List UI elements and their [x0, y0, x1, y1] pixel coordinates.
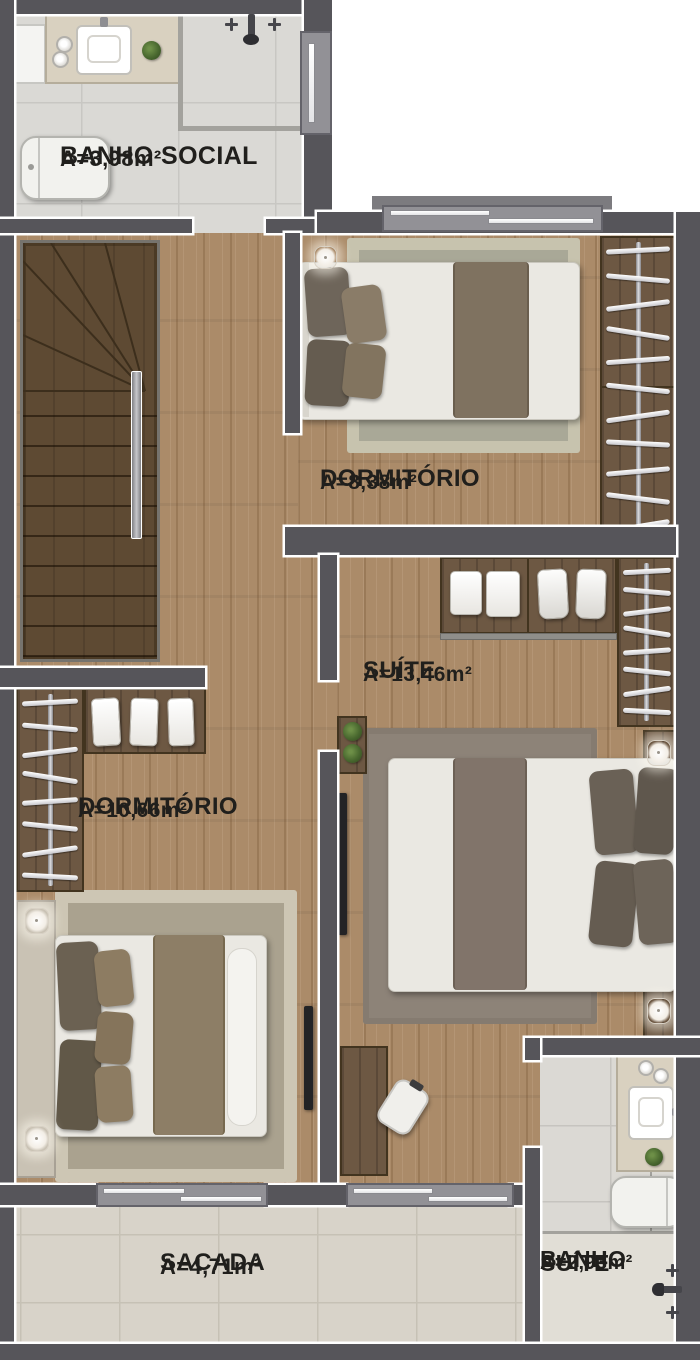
sacada-door-suite [346, 1183, 514, 1207]
suite-tv-icon [338, 793, 347, 935]
pillow [588, 860, 641, 948]
folded-towels-icon [486, 571, 520, 617]
wall-dorm1-left [285, 233, 300, 433]
sacada-door-pane [180, 1196, 262, 1202]
pillow [93, 948, 135, 1007]
pillow [341, 342, 386, 400]
shower-divider-v [178, 14, 183, 131]
wall-suite-left-upper [320, 555, 337, 680]
shower-valve-icon [666, 1264, 679, 1277]
closet-rod [644, 563, 649, 721]
dorm1-closet [600, 236, 676, 542]
wall-lamp-icon [25, 908, 49, 934]
dorm1-window-pane [488, 218, 594, 224]
room-area: A=8,38m² [320, 471, 417, 495]
toilet-tank-line [38, 138, 40, 198]
dorm2-bolster [227, 948, 257, 1126]
dorm1-window-pane [390, 210, 490, 216]
suite-wardrobe [440, 557, 617, 634]
sacada-floor [14, 1202, 525, 1344]
towel-roll-icon [638, 1060, 654, 1076]
bath-window-pane [308, 43, 315, 123]
sacada-door-dorm2 [96, 1183, 268, 1207]
bath-window [300, 31, 332, 135]
room-area: A=2,93m² [540, 1252, 633, 1274]
wall-bottom [0, 1344, 700, 1360]
room-area: A=3,98m² [60, 147, 162, 172]
suite-bed-throw [453, 758, 527, 990]
plant-icon [142, 41, 161, 60]
hanging-garment-icon [537, 568, 570, 620]
shower-head-icon [243, 34, 259, 45]
banho-suite-shower-divider [540, 1231, 684, 1234]
bath-sink-icon [76, 25, 132, 75]
sacada-door-pane [353, 1188, 433, 1194]
dorm1-bed-throw [453, 262, 529, 418]
wall-banho-suite-top [525, 1038, 700, 1055]
toilet-tank-line [666, 1178, 668, 1226]
plant-icon [645, 1148, 663, 1166]
sacada-door-pane [428, 1196, 508, 1202]
room-area: A=10,66m² [78, 799, 187, 823]
wall-top [0, 0, 332, 14]
banho-suite-sink-icon [628, 1086, 674, 1140]
wall-dorm2-top [0, 668, 205, 687]
shower-valve-icon [268, 18, 281, 31]
folded-clothes-icon [129, 698, 159, 747]
folded-clothes-icon [167, 698, 195, 747]
wall-lamp-icon [25, 1126, 49, 1152]
folded-towels-icon [450, 571, 482, 615]
staircase [20, 240, 160, 662]
shower-valve-icon [225, 18, 238, 31]
suite-closet [617, 557, 676, 727]
dorm2-bed-throw [153, 935, 225, 1135]
hanging-garment-icon [575, 568, 607, 619]
toilet-flush-icon [28, 164, 34, 170]
pillow [94, 1065, 134, 1123]
pillow [340, 283, 387, 344]
plant-icon [343, 722, 362, 741]
floor-plan: BANHO SOCIAL A=3,98m² DORMITÓRIO A=8,38m… [0, 0, 700, 1364]
plant-icon [343, 744, 362, 763]
wall-suite-left-lower [320, 752, 337, 1190]
folded-clothes-icon [91, 697, 121, 746]
towel-roll-icon [653, 1068, 669, 1084]
closet-rod [48, 694, 53, 886]
shower-divider-h [178, 126, 306, 131]
wall-suite-top [285, 527, 676, 555]
wall-right [676, 212, 700, 1344]
dorm2-closet-shelf [84, 688, 206, 754]
shower-head-icon [652, 1283, 664, 1296]
bath-faucet-icon [100, 17, 108, 27]
stair-railing [131, 371, 142, 539]
shower-valve-icon [666, 1306, 679, 1319]
wall-lamp-icon [314, 246, 337, 269]
wall-balcony-a [0, 1185, 96, 1205]
lamp-icon [647, 740, 671, 766]
room-area: A=4,71m² [160, 1255, 262, 1280]
pillow [633, 767, 679, 856]
lamp-icon [647, 998, 671, 1024]
pillow [94, 1011, 134, 1066]
dorm2-tv-icon [304, 1006, 313, 1110]
dorm2-closet-hanging [16, 688, 84, 892]
towel-roll-icon [52, 51, 69, 68]
wall-balcony-b [266, 1185, 346, 1205]
banho-suite-toilet-icon [610, 1176, 684, 1228]
wall-banho-suite-left-a [525, 1038, 540, 1060]
pillow [632, 858, 679, 945]
sacada-door-pane [103, 1188, 185, 1194]
room-area: A=13,46m² [363, 663, 472, 687]
wardrobe-lip [440, 633, 617, 640]
bath-cabinet [14, 24, 46, 84]
wall-banho-suite-left-b [525, 1148, 540, 1344]
wardrobe-divider [527, 559, 529, 632]
shower-spout-icon [248, 14, 255, 36]
pillow [588, 768, 639, 856]
wall-bath-bottom-a [0, 219, 192, 233]
